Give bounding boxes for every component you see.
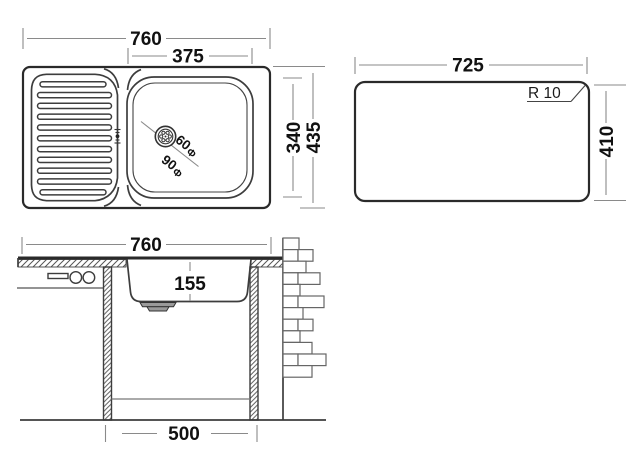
dim-500-label: 500: [168, 424, 200, 445]
cabinet-post-left: [104, 267, 112, 420]
dim-410-label: 410: [597, 126, 618, 158]
sink-outline: [23, 67, 270, 208]
dim-155-label: 155: [174, 274, 206, 295]
dim-435-label: 435: [304, 121, 325, 153]
drawer-handle: [48, 274, 68, 279]
cabinet-post-right: [250, 267, 258, 420]
radius-label: R 10: [528, 85, 561, 102]
knob-left: [70, 272, 82, 284]
dim-725-label: 725: [452, 56, 484, 77]
knob-right: [83, 272, 95, 284]
dim-760-top-label: 760: [130, 29, 162, 50]
sink-technical-drawing: 60Φ 90Φ 760 375 340: [0, 0, 630, 470]
countertop-right: [251, 260, 283, 268]
countertop-left: [18, 260, 126, 268]
dim-375-label: 375: [172, 47, 204, 68]
dim-760-bottom-label: 760: [130, 235, 162, 256]
dim-340-label: 340: [284, 122, 305, 154]
